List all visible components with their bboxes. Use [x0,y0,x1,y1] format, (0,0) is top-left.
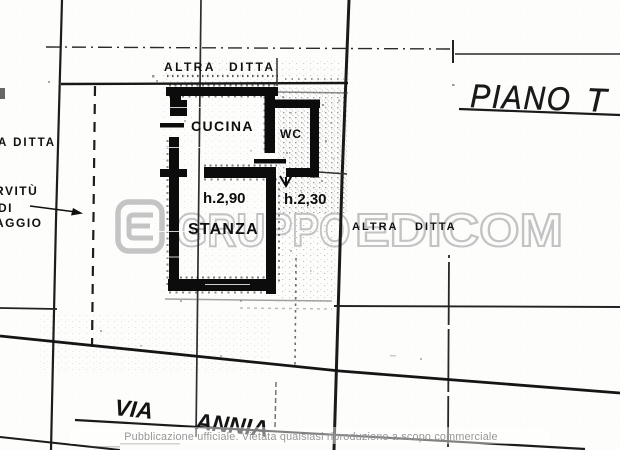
svg-text:Pubblicazione ufficiale. Vieta: Pubblicazione ufficiale. Vietata qualsia… [124,431,498,443]
svg-text:STANZA: STANZA [188,221,259,238]
svg-text:DITTA: DITTA [415,221,457,233]
svg-text:A DITTA: A DITTA [0,137,56,149]
svg-text:WC: WC [280,127,302,141]
svg-text:h.2,90: h.2,90 [203,190,246,207]
svg-text:ALTRA: ALTRA [164,60,216,74]
svg-text:RVITÙ: RVITÙ [0,183,38,198]
svg-text:VIA: VIA [113,394,154,424]
svg-text:AGGIO: AGGIO [0,216,43,230]
svg-text:DITTA: DITTA [229,60,275,74]
svg-text:CUCINA: CUCINA [191,118,254,134]
svg-text:DI: DI [0,201,13,215]
svg-text:h.2,30: h.2,30 [284,191,327,208]
